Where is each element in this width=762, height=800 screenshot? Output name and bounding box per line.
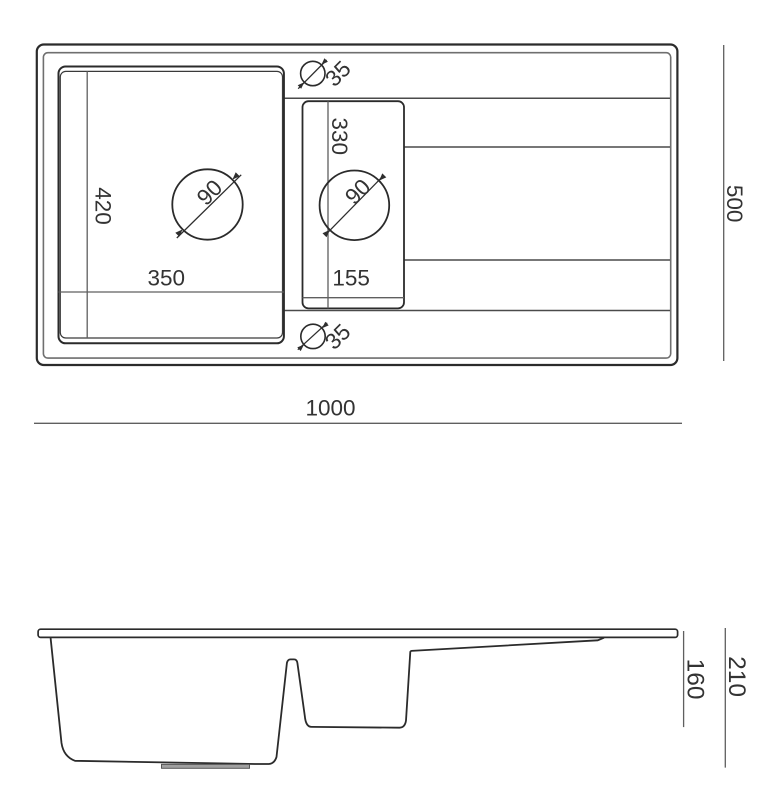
svg-text:350: 350 bbox=[148, 265, 186, 290]
svg-text:1000: 1000 bbox=[305, 395, 355, 420]
svg-text:330: 330 bbox=[327, 118, 352, 156]
svg-text:155: 155 bbox=[332, 266, 370, 291]
svg-text:210: 210 bbox=[723, 656, 750, 697]
svg-text:420: 420 bbox=[90, 187, 115, 225]
svg-text:500: 500 bbox=[722, 185, 747, 223]
svg-text:160: 160 bbox=[681, 659, 708, 700]
